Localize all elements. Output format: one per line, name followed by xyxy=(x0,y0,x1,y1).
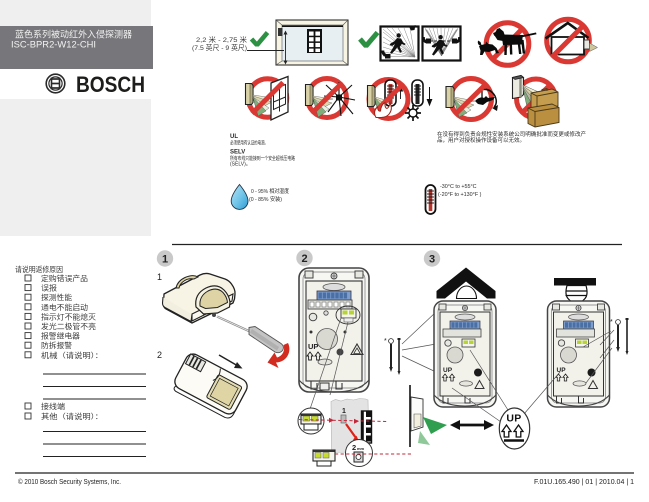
svg-text:UP: UP xyxy=(308,342,318,351)
svg-text:机械（请说明）：: 机械（请说明）： xyxy=(41,351,103,360)
svg-text:UP: UP xyxy=(506,413,521,425)
svg-text:品，用户对授权操作设备可以无效。: 品，用户对授权操作设备可以无效。 xyxy=(437,136,525,144)
svg-text:发光二极管不亮: 发光二极管不亮 xyxy=(41,322,96,331)
svg-text:2,2 米 - 2,75 米: 2,2 米 - 2,75 米 xyxy=(196,35,247,44)
svg-text:请说明返修原因: 请说明返修原因 xyxy=(15,265,63,274)
svg-text:*: * xyxy=(610,319,613,326)
svg-text:(7.5 英尺 - 9 英尺): (7.5 英尺 - 9 英尺) xyxy=(192,43,247,52)
svg-text:防拆报警: 防拆报警 xyxy=(41,341,72,350)
svg-text:(SELV)。: (SELV)。 xyxy=(230,162,251,168)
svg-text:在没有得到负责合规性安装系统公司明确批准而变更或修改产: 在没有得到负责合规性安装系统公司明确批准而变更或修改产 xyxy=(437,130,586,138)
svg-text:1: 1 xyxy=(162,254,168,266)
svg-text:2: 2 xyxy=(157,350,162,360)
svg-text:必须使用有认证的电源。: 必须使用有认证的电源。 xyxy=(230,140,268,147)
svg-text:探测性能: 探测性能 xyxy=(41,293,72,302)
svg-text:*: * xyxy=(384,338,387,345)
svg-text:蓝色系列被动红外入侵探测器: 蓝色系列被动红外入侵探测器 xyxy=(15,29,132,40)
svg-text:指示灯不能熄灭: 指示灯不能熄灭 xyxy=(41,312,96,321)
svg-text:误报: 误报 xyxy=(41,284,57,293)
svg-text:1: 1 xyxy=(157,272,162,282)
svg-text:UP: UP xyxy=(443,367,453,374)
svg-text:0 - 95% 相对湿度: 0 - 95% 相对湿度 xyxy=(251,187,290,195)
svg-text:3: 3 xyxy=(429,254,435,266)
svg-text:UL: UL xyxy=(230,134,238,140)
svg-text:通电不能启动: 通电不能启动 xyxy=(41,303,88,312)
svg-text:(-20°F to +130°F ): (-20°F to +130°F ) xyxy=(438,192,482,198)
svg-text:UP: UP xyxy=(557,367,567,374)
svg-text:SELV: SELV xyxy=(230,150,245,156)
svg-text:接线端: 接线端 xyxy=(41,402,65,411)
svg-text:其他（请说明）：: 其他（请说明）： xyxy=(41,412,103,421)
svg-text:(0 - 85% 安装): (0 - 85% 安装) xyxy=(249,195,282,203)
svg-text:ISC-BPR2-W12-CHI: ISC-BPR2-W12-CHI xyxy=(11,40,96,50)
svg-text:BOSCH: BOSCH xyxy=(76,72,145,97)
svg-text:F.01U.165.490 | 01 | 2010.04 |: F.01U.165.490 | 01 | 2010.04 | 1 xyxy=(534,479,634,486)
svg-text:2: 2 xyxy=(301,253,307,265)
svg-text:mm: mm xyxy=(357,446,365,451)
svg-text:报警继电器: 报警继电器 xyxy=(41,332,80,341)
svg-text:2: 2 xyxy=(352,443,356,452)
svg-text:1: 1 xyxy=(342,408,346,415)
svg-text:© 2010 Bosch Security Systems,: © 2010 Bosch Security Systems, Inc. xyxy=(18,478,121,486)
svg-text:-30°C to +55°C: -30°C to +55°C xyxy=(440,184,477,190)
svg-text:定购错误产品: 定购错误产品 xyxy=(41,274,88,283)
